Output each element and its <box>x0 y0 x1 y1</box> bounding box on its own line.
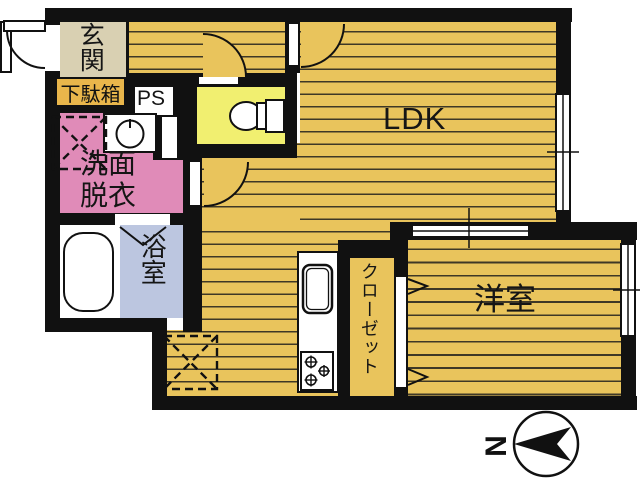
western-room-label: 洋室 <box>474 284 536 317</box>
closet-door-opening <box>396 277 406 387</box>
washroom-door-leaf <box>188 160 202 207</box>
window-west-room-top <box>411 224 530 238</box>
toilet-room-floor <box>195 87 285 144</box>
wall-top <box>45 8 572 22</box>
bathroom-label: 浴室 <box>138 233 165 313</box>
ldk-floor-arm <box>167 330 202 396</box>
window-ldk-right <box>555 93 571 212</box>
window-west-room-right <box>620 243 636 337</box>
hallway-floor <box>129 20 288 73</box>
ldk-door-leaf <box>287 22 300 67</box>
entrance-label: 玄関 <box>77 22 103 78</box>
compass-arrow <box>514 427 571 461</box>
wall-bottom <box>152 396 637 410</box>
compass-north-label: N <box>480 435 513 457</box>
toilet-door-leaf <box>197 75 240 86</box>
washroom-label: 洗面 脱衣 <box>80 148 136 212</box>
pipe-space-strip <box>162 117 177 158</box>
ldk-label: LDK <box>383 103 446 136</box>
closet-label: クローゼット <box>359 262 378 394</box>
shoe-cabinet: 下駄箱 <box>55 77 126 107</box>
wall-bath-bottom <box>45 318 167 332</box>
floor-plan: 下駄箱 <box>0 0 640 480</box>
shoe-cabinet-label: 下駄箱 <box>61 78 121 107</box>
bathroom-tub-area <box>60 225 120 318</box>
compass: N <box>480 412 578 476</box>
wall-toilet-bottom <box>183 144 297 158</box>
entrance-door-swing <box>1 21 45 72</box>
bathroom-door-opening <box>115 214 170 225</box>
pipe-space-label: PS <box>137 88 165 110</box>
wall-closet-left <box>338 240 350 396</box>
entrance-door-opening <box>45 25 60 71</box>
wall-entrance-divider <box>126 20 129 73</box>
